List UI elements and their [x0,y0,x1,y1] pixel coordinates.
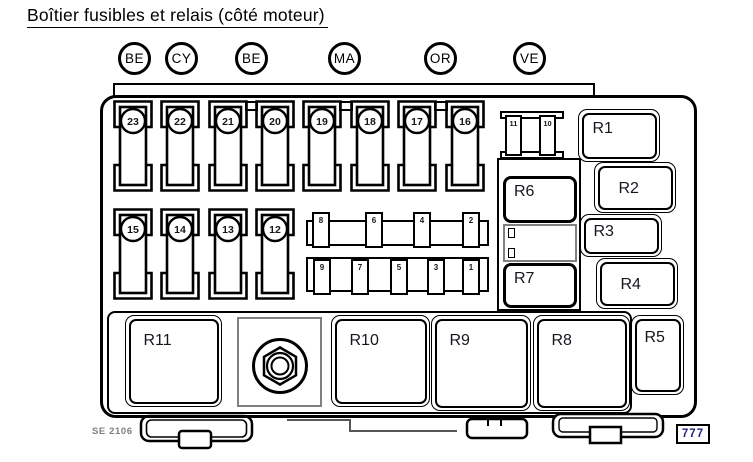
relay-label: R2 [619,180,639,197]
relay-R3: R3 [580,214,662,257]
fuse-number: 2 [464,216,478,225]
relay-R1: R1 [578,109,660,162]
fuse-21: 21 [208,100,248,192]
fuse-number: 22 [174,116,186,128]
page-title: Boîtier fusibles et relais (côté moteur) [27,5,328,28]
mini-fuse-7: 7 [351,259,369,295]
fuse-number: 1 [464,263,478,272]
fuse-number: 19 [316,116,328,128]
mini-fuse-3: 3 [427,259,445,295]
fuse-number: 16 [459,116,471,128]
relay-label: R11 [144,332,172,349]
connector-tab-middle [467,419,527,438]
relay-body: R1 [582,113,657,159]
pin-mark [508,228,515,238]
fuse-22: 22 [160,100,200,192]
page-number-box: 777 [676,424,710,444]
mounting-nut-icon [239,319,324,407]
bottom-connector-tabs [100,410,712,462]
relay-label: R4 [621,276,641,293]
relay-body: R3 [584,218,659,254]
fuse-15: 15 [113,208,153,300]
relay-R6: R6 [503,176,577,223]
fuse-20: 20 [255,100,295,192]
mini-fuse-2: 2 [462,212,480,248]
drawing-code: SE 2106 [92,426,133,437]
wire-color-code-label: OR [430,51,451,66]
fusebox-diagram-page: Boîtier fusibles et relais (côté moteur)… [0,0,753,462]
relay-body: R4 [600,262,675,306]
fuse-number: 15 [127,224,139,236]
relay-R2: R2 [594,162,676,213]
relay-label: R3 [594,223,614,240]
wire-color-code-CY: CY [165,42,198,75]
relay-body: R10 [335,319,427,404]
fuse-number: 13 [222,224,234,236]
fuse-18: 18 [350,100,390,192]
wire-color-code-label: MA [334,51,355,66]
fuse-number: 5 [392,263,406,272]
fuse-number: 6 [367,216,381,225]
wire-color-code-VE: VE [513,42,546,75]
relay-body: R2 [598,166,673,210]
fuse-number: 7 [353,263,367,272]
page-number: 777 [682,428,704,440]
relay-R4: R4 [596,258,678,309]
pin-mark [508,248,515,258]
maxi-fuse-10: 10 [539,115,556,156]
relay-body: R11 [129,319,219,404]
wire-color-code-label: CY [172,51,192,66]
fuse-number: 4 [415,216,429,225]
fuse-12: 12 [255,208,295,300]
wire-color-code-label: BE [242,51,261,66]
wire-color-code-OR: OR [424,42,457,75]
relay-R9: R9 [431,315,531,411]
relay-R10: R10 [331,315,430,407]
fuse-number: 20 [269,116,281,128]
mini-fuse-6: 6 [365,212,383,248]
relay-body: R8 [537,319,627,408]
relay-body: R5 [635,319,681,392]
fuse-number: 3 [429,263,443,272]
relay-R5: R5 [631,315,684,395]
maxi-fuse-11: 11 [505,115,522,156]
relay-label: R9 [450,332,470,349]
wire-color-code-label: VE [520,51,539,66]
fuse-number: 8 [314,216,328,225]
fuse-number: 9 [315,263,329,272]
mounting-nut-cell [237,317,322,407]
mini-fuse-8: 8 [312,212,330,248]
connector-tab-right-lug [590,427,621,443]
relay-label: R6 [514,183,534,200]
mini-fuse-1: 1 [462,259,480,295]
relay-label: R8 [552,332,572,349]
edge-step-line [287,420,457,431]
wire-color-code-BE: BE [118,42,151,75]
wire-color-code-BE: BE [235,42,268,75]
fuse-number: 12 [269,224,281,236]
relay-label: R1 [593,120,613,137]
wire-color-code-label: BE [125,51,144,66]
mini-fuse-5: 5 [390,259,408,295]
relay-label: R7 [514,270,534,287]
fuse-13: 13 [208,208,248,300]
mini-fuse-4: 4 [413,212,431,248]
fuse-17: 17 [397,100,437,192]
fuse-14: 14 [160,208,200,300]
relay-R8: R8 [533,315,630,411]
fuse-number: 11 [507,119,520,128]
fuse-number: 14 [174,224,186,236]
fuse-number: 10 [541,119,554,128]
relay-body: R9 [435,319,528,408]
fuse-19: 19 [302,100,342,192]
fuse-number: 18 [364,116,376,128]
relay-label: R10 [350,332,379,349]
fuse-number: 23 [127,116,139,128]
fuse-16: 16 [445,100,485,192]
relay-R11: R11 [125,315,222,407]
connector-tab-left-lug [179,431,211,448]
wire-color-code-MA: MA [328,42,361,75]
fuse-23: 23 [113,100,153,192]
mini-fuse-9: 9 [313,259,331,295]
fuse-number: 21 [222,116,234,128]
relay-R7: R7 [503,263,577,308]
relay-label: R5 [645,329,665,346]
fuse-number: 17 [411,116,423,128]
